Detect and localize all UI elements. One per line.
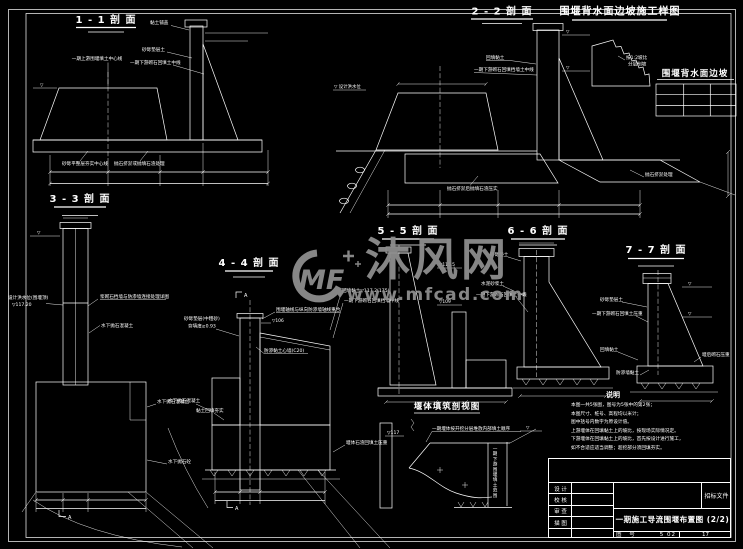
annotation-s33-conn: 浆砌石挡墙与防渗墙连接处理详图 (100, 293, 169, 300)
annotation-s33-conc: 水下抛石混凝土 (101, 322, 134, 329)
section-3-3: 3 - 3 剖 面 ▽ 设计洪水位(围堰顶) ▽117.20 浆砌石挡墙与防渗墙… (8, 192, 213, 548)
mf-logo-letters: MF (299, 265, 345, 296)
cutaway-detail: 堰体填筑剖视图 ▽ 一期堰体按开挖分层堆放内部填土顺序 ▽117 (380, 401, 542, 508)
annotation-s44-b2: 黏土回填夯实 (196, 407, 224, 414)
annotation-s11-base1: 砂砾平整层夯实中心线 (62, 160, 108, 167)
watermark: MF 沐风网 www.mfcad.com (287, 241, 519, 305)
figure-number-label: 图 号 (616, 531, 638, 539)
section-2-2: 2 - 2 剖 面 回填黏土 一期下游砌石回填挡墙土中线 ▽ 设计洪水位 抛石挤… (333, 5, 735, 219)
section-2-2-title: 2 - 2 剖 面 (472, 5, 533, 18)
annotation-s44-core: 防渗黏土心墙(C20) (264, 347, 304, 354)
note-line: 本图尺寸、桩号、高程均以米计； (571, 411, 738, 420)
slope-table (656, 84, 736, 116)
watermark-brand: 沐风网 (365, 237, 509, 282)
document-type: 招标文件 (701, 482, 732, 508)
section-7-7: 7 - 7 剖 面 ▽ ▽ 砂砾垫层土 一期下游砌石回填土压重 回填黏土 防渗墙… (592, 243, 730, 403)
annotation-s77-core: 防渗墙黏土 (616, 369, 639, 376)
wall-shape (537, 30, 559, 160)
wall-shape (190, 26, 203, 140)
slope-detail-title: 围堰背水面边坡施工样图 (560, 5, 681, 18)
water-level-icon: ▽ (566, 30, 570, 35)
annotation-s33-wl1: 设计洪水位(围堰顶) (8, 294, 49, 301)
annotation-s77-weight: 一期下游砌石回填土压重 (592, 310, 643, 317)
annotation-sd-note2: 分层削坡 (628, 61, 647, 68)
watermark-url: www.mfcad.com (347, 285, 524, 305)
wall-shape (648, 284, 703, 367)
annotation-s44-l2: 夯填度≥0.93 (188, 323, 216, 330)
note-line: 如不合适应适当调整；超挖部分须回填夯实。 (571, 445, 738, 454)
annotation-s22-wl: ▽ 设计洪水位 (334, 83, 361, 90)
annotation-s11-center: 一期上游围堰填土中心线 (72, 55, 123, 62)
section-mark-a: A (235, 506, 239, 512)
annotation-s33-wl2: ▽117.20 (12, 302, 32, 308)
annotation-cut-el: ▽117 (387, 430, 399, 436)
note-line: 上游堰体在回填黏土上的坡比，按现场实际情况定。 (571, 428, 738, 437)
base-gravel-shape (212, 425, 330, 470)
section-1-1: 1 - 1 剖 面 一期上游围堰填土中心线 黏土铺盖 砂砾垫层土 一期下游砌石回… (33, 13, 270, 186)
annotation-cut-range: 一期下游围堰填土范围 (491, 446, 497, 506)
annotation-s44-b1: 水下抛石混凝土 (168, 397, 201, 404)
role-reviewer: 审 查 (551, 507, 570, 515)
annotation-s44-l1: 砂砾垫层(中粗砂) (184, 315, 220, 322)
section-4-4-title: 4 - 4 剖 面 (219, 256, 280, 269)
annotation-s22-base: 抛石挤淤后抛填石渣压实 (447, 185, 498, 192)
wall-shape (524, 257, 601, 368)
role-tracer: 描 图 (551, 519, 570, 527)
annotation-s77-after: 堰后砌石压重 (702, 351, 730, 358)
section-1-1-title: 1 - 1 剖 面 (76, 13, 137, 26)
annotation-cut-note: 一期堰体按开挖分层堆放内部填土顺序 (432, 425, 511, 432)
annotation-s11-base2: 抛石挤淤或抛填石渣处理 (114, 160, 165, 167)
section-4-4-dimensions (213, 472, 327, 504)
annotation-s22-mid: 一期下游砌石回填挡墙土中线 (474, 66, 534, 73)
sheet-number: 17 (679, 531, 732, 539)
drawing-title: 一期施工导流围堰布置图 (2/2) (613, 508, 732, 531)
section-7-7-title: 7 - 7 剖 面 (626, 243, 687, 256)
water-level-icon: ▽ (566, 66, 570, 71)
foundation-block-shape (36, 382, 146, 492)
water-level-icon: ▽ (688, 282, 692, 287)
annotation-s11-sand: 砂砾垫层土 (142, 46, 165, 53)
cad-drawing-canvas: 1 - 1 剖 面 一期上游围堰填土中心线 黏土铺盖 砂砾垫层土 一期下游砌石回… (0, 0, 743, 549)
annotation-s77-sand: 砂砾垫层土 (600, 296, 623, 303)
water-level-icon: ▽ (37, 231, 41, 236)
section-mark-a: A (244, 293, 248, 299)
cutaway-title: 堰体填筑剖视图 (414, 401, 481, 412)
note-line: 图中括号内数字为原设计值。 (571, 419, 738, 428)
role-checker: 校 核 (551, 496, 570, 504)
cutoff-wall-shape (452, 312, 466, 388)
section-3-3-title: 3 - 3 剖 面 (50, 192, 111, 205)
section-6-6-title: 6 - 6 剖 面 (508, 224, 569, 237)
slope-detail: 围堰背水面边坡施工样图 ▽ ▽ 按1:2坡比 分层削坡 围堰背水面边坡 (560, 5, 737, 117)
water-level-icon: ▽ (688, 312, 692, 317)
annotation-s22-right: 抛石挤淤处理 (645, 171, 673, 178)
slope-table-title: 围堰背水面边坡 (662, 68, 729, 79)
figure-number-value: 5 02 (644, 531, 676, 539)
annotation-s33-r2: 水下抛石砼 (168, 458, 191, 465)
rockfill-shape (40, 88, 167, 140)
annotation-s77-clay: 回填黏土 (600, 346, 619, 353)
notes-heading: 说明 (606, 390, 738, 400)
annotation-s44-el: ▽106 (272, 318, 284, 324)
backfill-layers-shape (260, 333, 330, 425)
section-3-3-dimensions (34, 493, 148, 512)
annotation-s22-clay: 回填黏土 (486, 54, 505, 61)
annotation-s44-axis: 围堰轴线与纵向防渗墙轴线重合 (276, 306, 341, 313)
rockfill-shape (376, 93, 498, 150)
annotation-s44-rock: 堰体石渣回填土压重 (346, 439, 388, 446)
note-line: 本图一共5张图，图号为5张中的第2张； (571, 402, 738, 411)
water-level-icon: ▽ (40, 84, 44, 89)
title-block: 设 计 校 核 审 查 描 图 招标文件 一期施工导流围堰布置图 (2/2) 图… (548, 458, 731, 538)
annotation-s11-clay: 黏土铺盖 (150, 19, 169, 26)
annotation-sd-note1: 按1:2坡比 (626, 54, 648, 61)
note-line: 下游堰体在回填黏土上的坡比，首先按设计进行施工， (571, 436, 738, 445)
role-designer: 设 计 (551, 485, 570, 493)
water-level-icon: ▽ (526, 426, 530, 431)
notes-block: 说明 本图一共5张图，图号为5张中的第2张； 本图尺寸、桩号、高程均以米计； 图… (556, 390, 738, 454)
